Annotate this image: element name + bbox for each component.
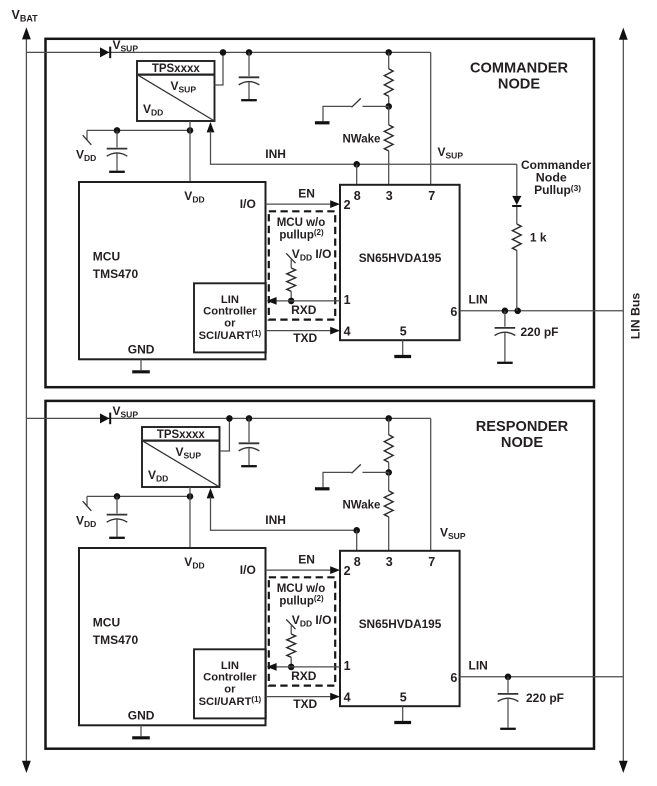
svg-text:TMS470: TMS470 <box>93 633 139 647</box>
svg-text:2: 2 <box>344 198 351 212</box>
svg-text:RESPONDER: RESPONDER <box>476 419 569 435</box>
svg-text:GND: GND <box>128 709 155 723</box>
svg-text:220 pF: 220 pF <box>521 325 559 339</box>
svg-text:5: 5 <box>400 324 407 338</box>
svg-text:6: 6 <box>450 305 457 319</box>
svg-text:Node: Node <box>536 170 567 184</box>
svg-text:NODE: NODE <box>501 435 543 451</box>
svg-text:LIN: LIN <box>221 660 239 672</box>
svg-text:1: 1 <box>344 659 351 673</box>
svg-text:TPSxxxx: TPSxxxx <box>152 63 201 75</box>
svg-text:8: 8 <box>354 555 361 569</box>
svg-text:INH: INH <box>265 147 286 161</box>
svg-text:VDD I/O: VDD I/O <box>292 247 332 263</box>
svg-text:7: 7 <box>428 555 435 569</box>
svg-text:EN: EN <box>298 187 315 201</box>
svg-text:3: 3 <box>386 555 393 569</box>
svg-text:TXD: TXD <box>293 697 317 711</box>
svg-text:INH: INH <box>265 513 286 527</box>
svg-text:LIN: LIN <box>469 659 488 673</box>
svg-text:or: or <box>224 317 236 329</box>
svg-text:Controller: Controller <box>203 306 257 318</box>
svg-text:or: or <box>224 683 236 695</box>
svg-text:NODE: NODE <box>498 76 540 92</box>
svg-text:4: 4 <box>344 324 351 338</box>
svg-text:8: 8 <box>354 189 361 203</box>
svg-text:3: 3 <box>386 189 393 203</box>
svg-text:TXD: TXD <box>293 331 317 345</box>
svg-text:I/O: I/O <box>240 197 256 211</box>
svg-text:EN: EN <box>298 553 315 567</box>
svg-text:TMS470: TMS470 <box>93 267 139 281</box>
svg-text:LIN: LIN <box>221 294 239 306</box>
svg-text:SN65HVDA195: SN65HVDA195 <box>359 251 442 265</box>
svg-text:Controller: Controller <box>203 672 257 684</box>
svg-text:LIN Bus: LIN Bus <box>629 293 643 340</box>
svg-text:VDD I/O: VDD I/O <box>292 613 332 629</box>
svg-text:MCU: MCU <box>93 616 120 630</box>
svg-text:LIN: LIN <box>469 293 488 307</box>
svg-text:COMMANDER: COMMANDER <box>470 61 569 77</box>
svg-text:RXD: RXD <box>291 669 317 683</box>
svg-text:SN65HVDA195: SN65HVDA195 <box>359 617 442 631</box>
svg-text:1: 1 <box>344 293 351 307</box>
svg-text:NWake: NWake <box>343 134 381 146</box>
svg-text:220 pF: 220 pF <box>526 691 564 705</box>
svg-text:1 k: 1 k <box>530 231 547 245</box>
svg-text:MCU: MCU <box>93 250 120 264</box>
svg-text:4: 4 <box>344 690 351 704</box>
svg-text:6: 6 <box>450 671 457 685</box>
svg-text:TPSxxxx: TPSxxxx <box>157 429 206 441</box>
svg-text:7: 7 <box>428 189 435 203</box>
svg-text:I/O: I/O <box>240 563 256 577</box>
svg-text:5: 5 <box>400 690 407 704</box>
svg-text:NWake: NWake <box>343 500 381 512</box>
svg-text:RXD: RXD <box>291 303 317 317</box>
svg-text:GND: GND <box>128 343 155 357</box>
svg-text:2: 2 <box>344 564 351 578</box>
